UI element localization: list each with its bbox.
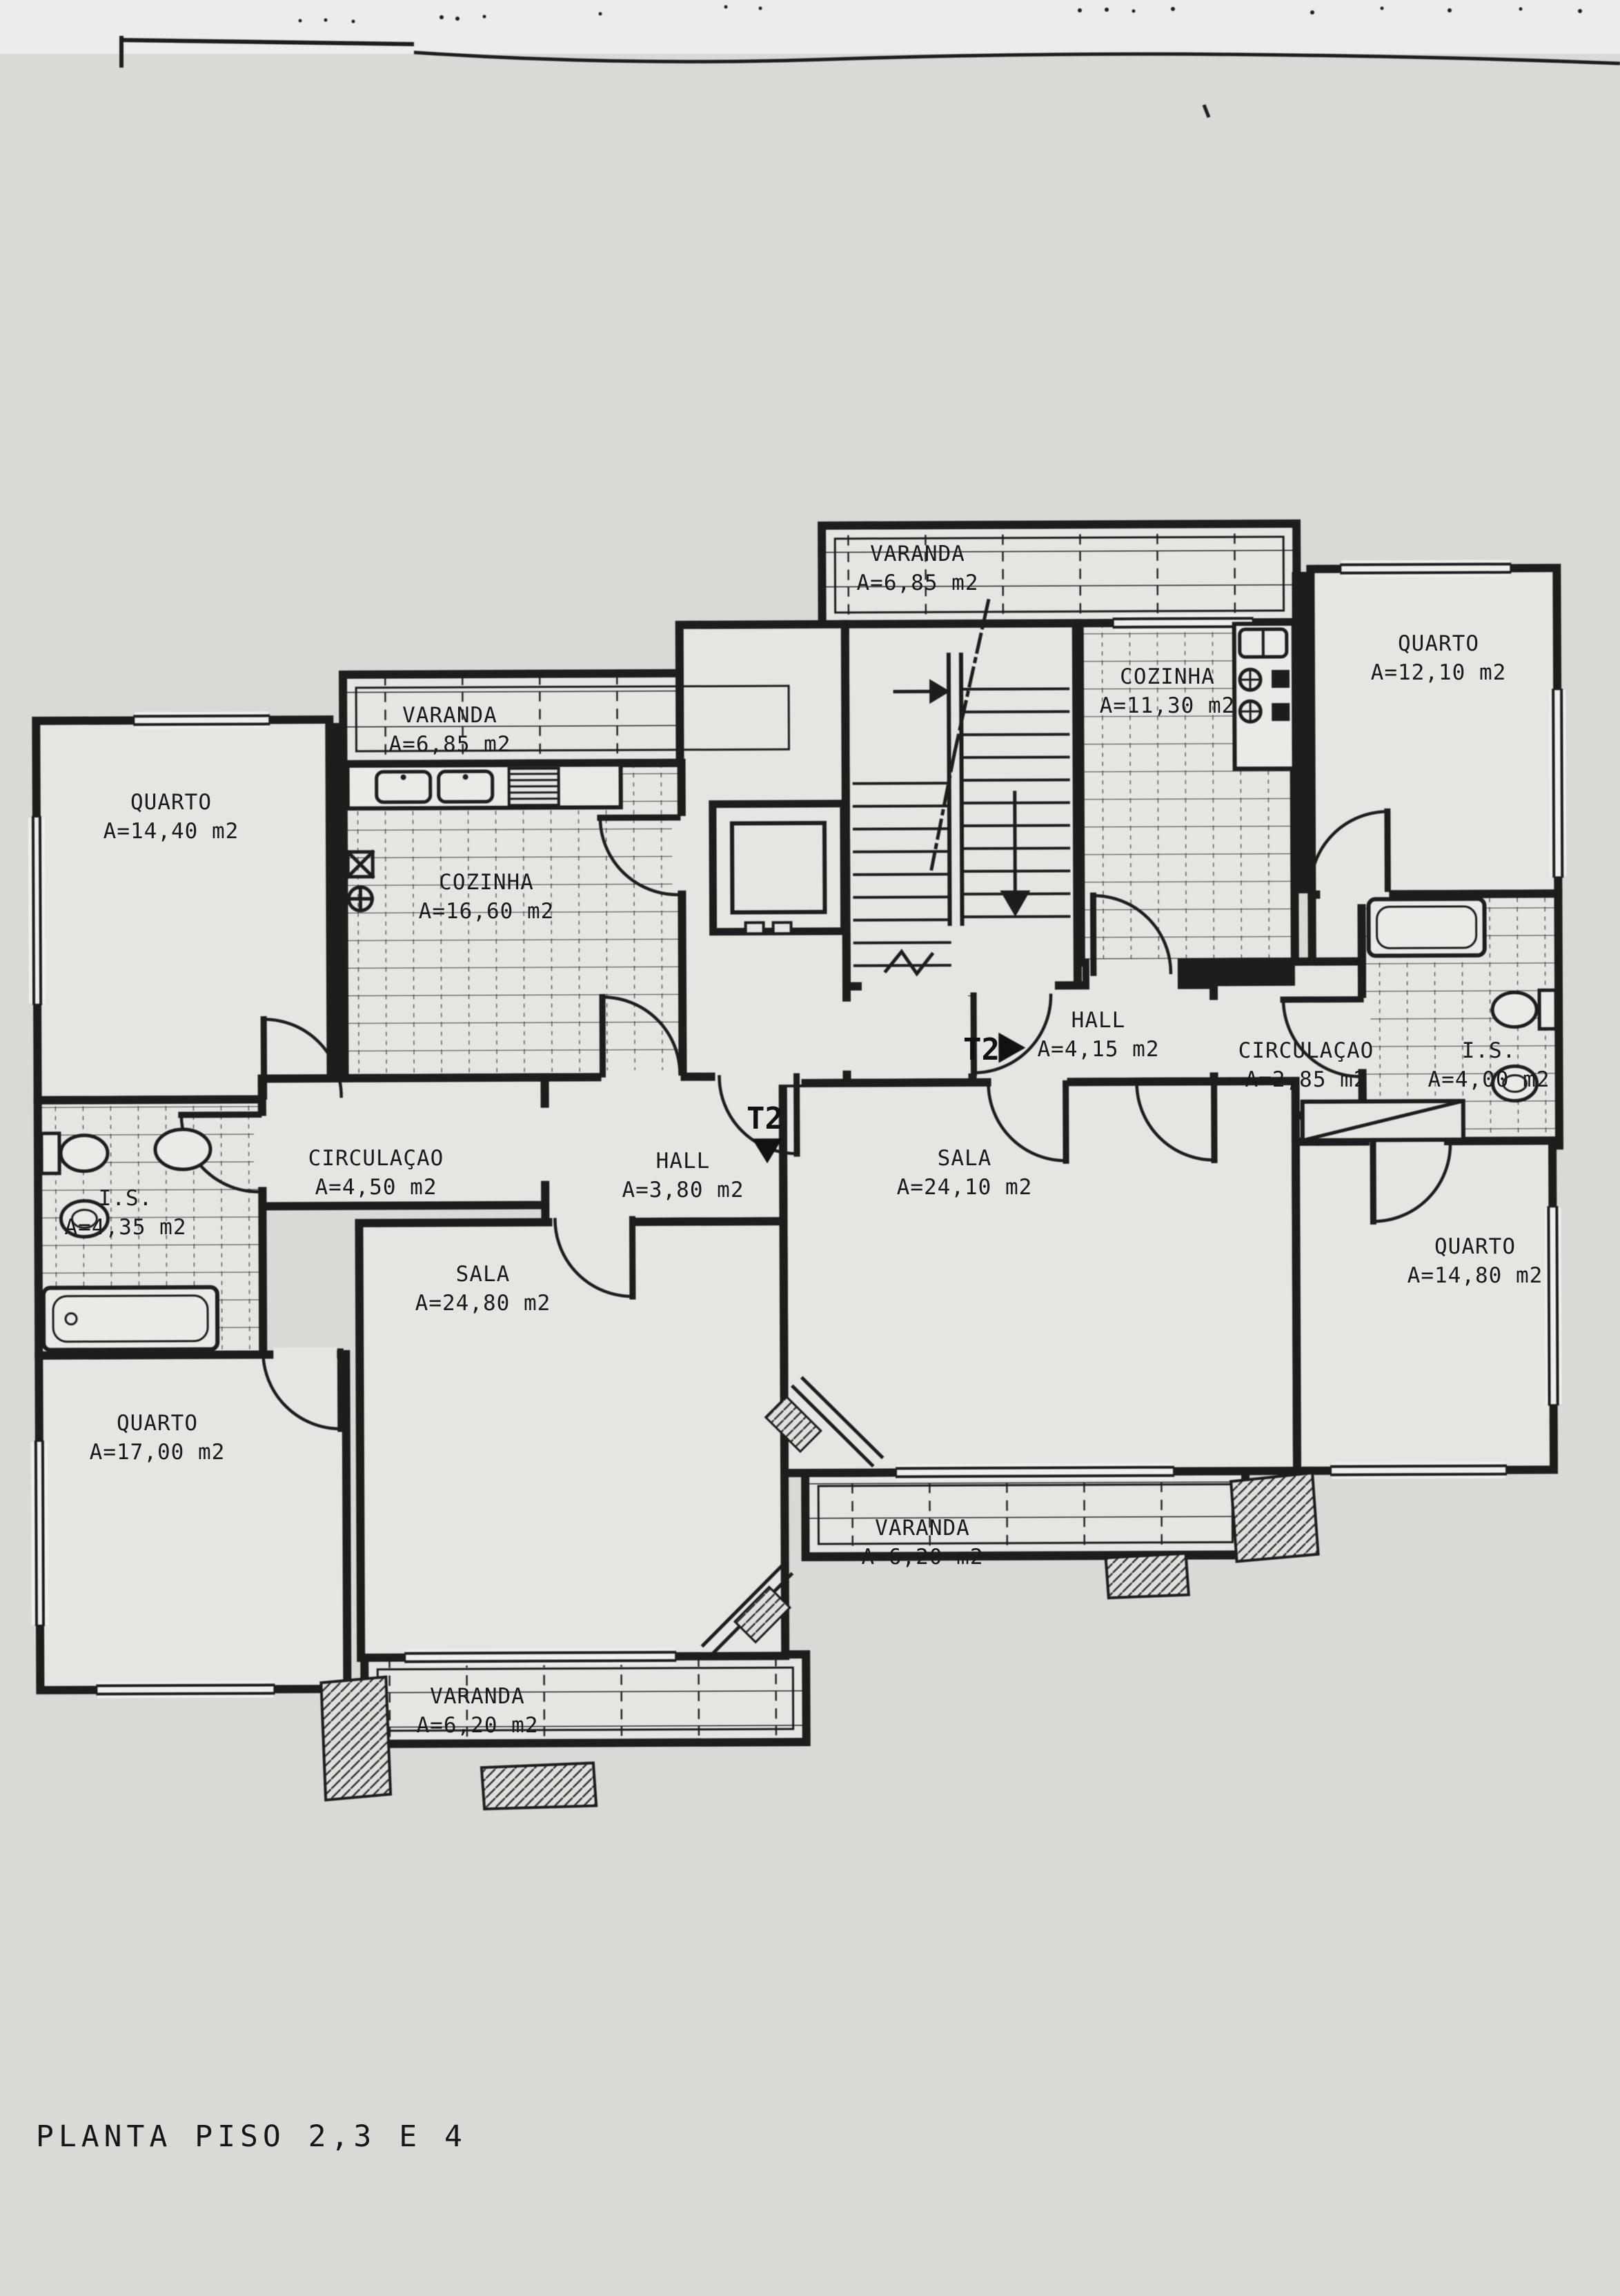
label-circulacao-left: CIRCULAÇAO A=4,50 m2: [308, 1144, 444, 1202]
room-area: A=6,85 m2: [389, 730, 511, 759]
t2-marker-left: T2: [747, 1104, 783, 1134]
label-hall-right: HALL A=4,15 m2: [1038, 1006, 1160, 1064]
label-varanda-bottom: VARANDA A=6,20 m2: [417, 1682, 539, 1740]
room-area: A=4,35 m2: [65, 1213, 187, 1242]
room-name: VARANDA: [402, 703, 497, 728]
room-area: A=14,40 m2: [103, 817, 239, 846]
room-area: A=4,50 m2: [308, 1173, 444, 1202]
room-name: VARANDA: [430, 1684, 525, 1709]
room-area: A=4,00 m2: [1428, 1065, 1550, 1094]
room-name: SALA: [938, 1146, 992, 1171]
label-hall-left: HALL A=3,80 m2: [622, 1147, 744, 1205]
room-name: COZINHA: [1120, 664, 1215, 689]
label-is-left: I.S. A=4,35 m2: [65, 1184, 187, 1242]
t2-label: T2: [963, 1032, 1000, 1067]
room-area: A=6,20 m2: [862, 1543, 984, 1572]
room-area: A=12,10 m2: [1371, 658, 1507, 687]
label-layer: VARANDA A=6,85 m2 QUARTO A=12,10 m2 COZI…: [0, 0, 1620, 2296]
label-quarto-ne: QUARTO A=12,10 m2: [1371, 629, 1507, 687]
label-sala-left: SALA A=24,80 m2: [415, 1260, 551, 1318]
room-name: QUARTO: [117, 1411, 198, 1436]
room-name: VARANDA: [875, 1516, 970, 1541]
room-area: A=3,80 m2: [622, 1176, 744, 1205]
label-cozinha-right: COZINHA A=11,30 m2: [1100, 662, 1236, 720]
room-name: HALL: [656, 1149, 711, 1174]
room-name: QUARTO: [1434, 1234, 1516, 1259]
room-area: A=6,85 m2: [857, 568, 979, 597]
label-circulacao-right: CIRCULAÇAO A=2,85 m2: [1238, 1036, 1374, 1094]
label-sala-right: SALA A=24,10 m2: [897, 1144, 1033, 1202]
t2-marker-right: T2: [963, 1035, 1000, 1065]
label-quarto-sw: QUARTO A=17,00 m2: [90, 1409, 226, 1467]
room-area: A=24,10 m2: [897, 1173, 1033, 1202]
label-quarto-nw: QUARTO A=14,40 m2: [103, 788, 239, 846]
plan-title: PLANTA PISO 2,3 E 4: [36, 2119, 467, 2154]
room-area: A=17,00 m2: [90, 1438, 226, 1467]
room-area: A=24,80 m2: [415, 1289, 551, 1318]
room-name: COZINHA: [439, 870, 534, 895]
label-quarto-se: QUARTO A=14,80 m2: [1407, 1232, 1543, 1290]
label-varanda-left: VARANDA A=6,85 m2: [389, 701, 511, 759]
room-name: I.S.: [99, 1186, 153, 1211]
room-name: CIRCULAÇAO: [308, 1146, 444, 1171]
t2-label: T2: [747, 1101, 783, 1136]
room-name: QUARTO: [130, 790, 212, 815]
room-area: A=14,80 m2: [1407, 1261, 1543, 1290]
room-name: CIRCULAÇAO: [1238, 1038, 1374, 1063]
room-area: A=16,60 m2: [419, 897, 555, 926]
room-area: A=11,30 m2: [1100, 691, 1236, 720]
room-area: A=6,20 m2: [417, 1711, 539, 1740]
room-area: A=4,15 m2: [1038, 1035, 1160, 1064]
room-name: QUARTO: [1398, 631, 1479, 656]
label-cozinha-left: COZINHA A=16,60 m2: [419, 868, 555, 926]
room-name: I.S.: [1462, 1038, 1517, 1063]
room-area: A=2,85 m2: [1238, 1065, 1374, 1094]
label-varanda-top: VARANDA A=6,85 m2: [857, 540, 979, 597]
room-name: VARANDA: [870, 542, 965, 566]
scanned-floor-plan-page: VARANDA A=6,85 m2 QUARTO A=12,10 m2 COZI…: [0, 0, 1620, 2296]
label-is-right: I.S. A=4,00 m2: [1428, 1036, 1550, 1094]
label-varanda-mid: VARANDA A=6,20 m2: [862, 1514, 984, 1572]
room-name: SALA: [456, 1262, 511, 1287]
room-name: HALL: [1071, 1008, 1126, 1033]
